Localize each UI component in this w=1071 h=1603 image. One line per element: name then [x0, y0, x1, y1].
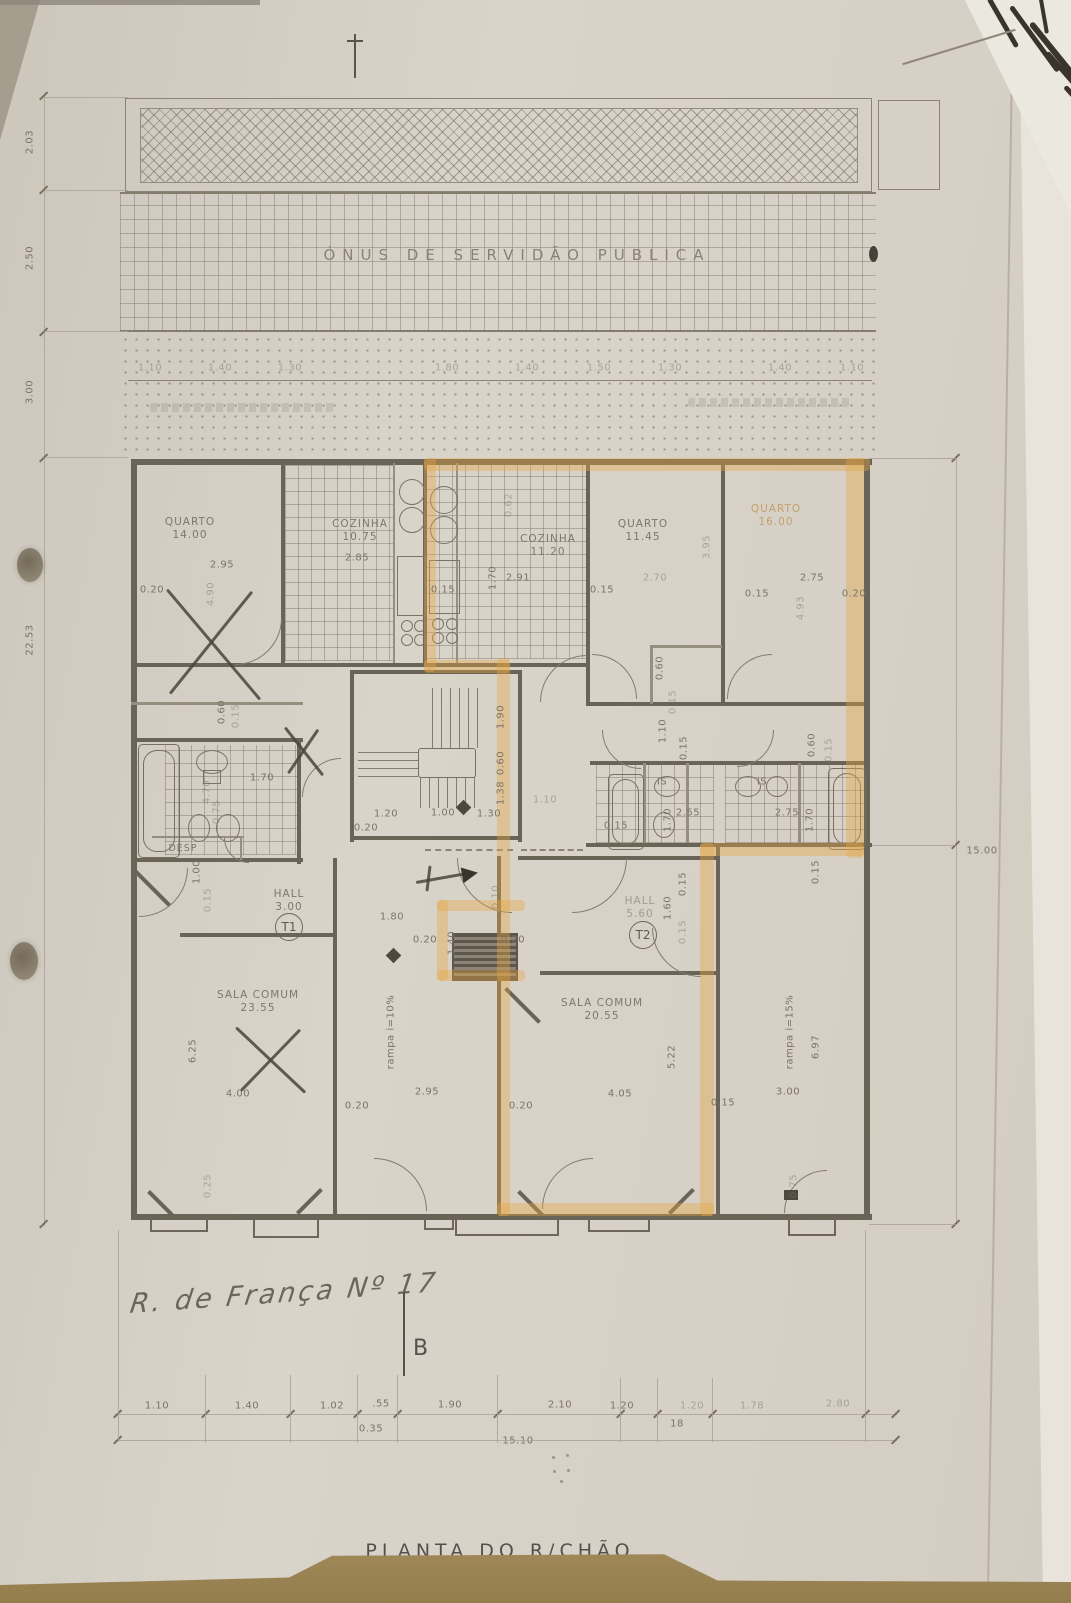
pencil-stroke — [166, 589, 261, 701]
dot — [560, 1480, 563, 1483]
section-letter: B — [413, 1336, 428, 1361]
dot — [552, 1456, 555, 1459]
x — [657, 1378, 658, 1442]
x — [397, 1375, 398, 1443]
floor-plan: 1.101.401.301.801.401.501.301.401.102.03… — [0, 0, 1071, 1603]
pencil-layer — [0, 0, 1071, 1603]
x — [497, 1375, 498, 1443]
pencil-arrowhead — [461, 865, 480, 884]
x — [712, 1378, 713, 1442]
bottom-dim-line2 — [115, 1440, 897, 1441]
dot — [553, 1470, 556, 1473]
pencil-stroke — [416, 872, 466, 884]
hole-punch — [10, 942, 38, 980]
x — [865, 1230, 866, 1442]
x — [357, 1375, 358, 1443]
section-line-b — [403, 1292, 405, 1376]
x — [620, 1378, 621, 1442]
x — [118, 1230, 119, 1442]
dot — [567, 1469, 570, 1472]
x — [205, 1375, 206, 1443]
hole-punch — [17, 548, 43, 582]
photo-of-floor-plan: ÓNUS DE SERVIDÃO PUBLICA — [0, 0, 1071, 1603]
dot — [566, 1454, 569, 1457]
x — [290, 1375, 291, 1443]
bottom-dim-line1 — [115, 1414, 897, 1415]
